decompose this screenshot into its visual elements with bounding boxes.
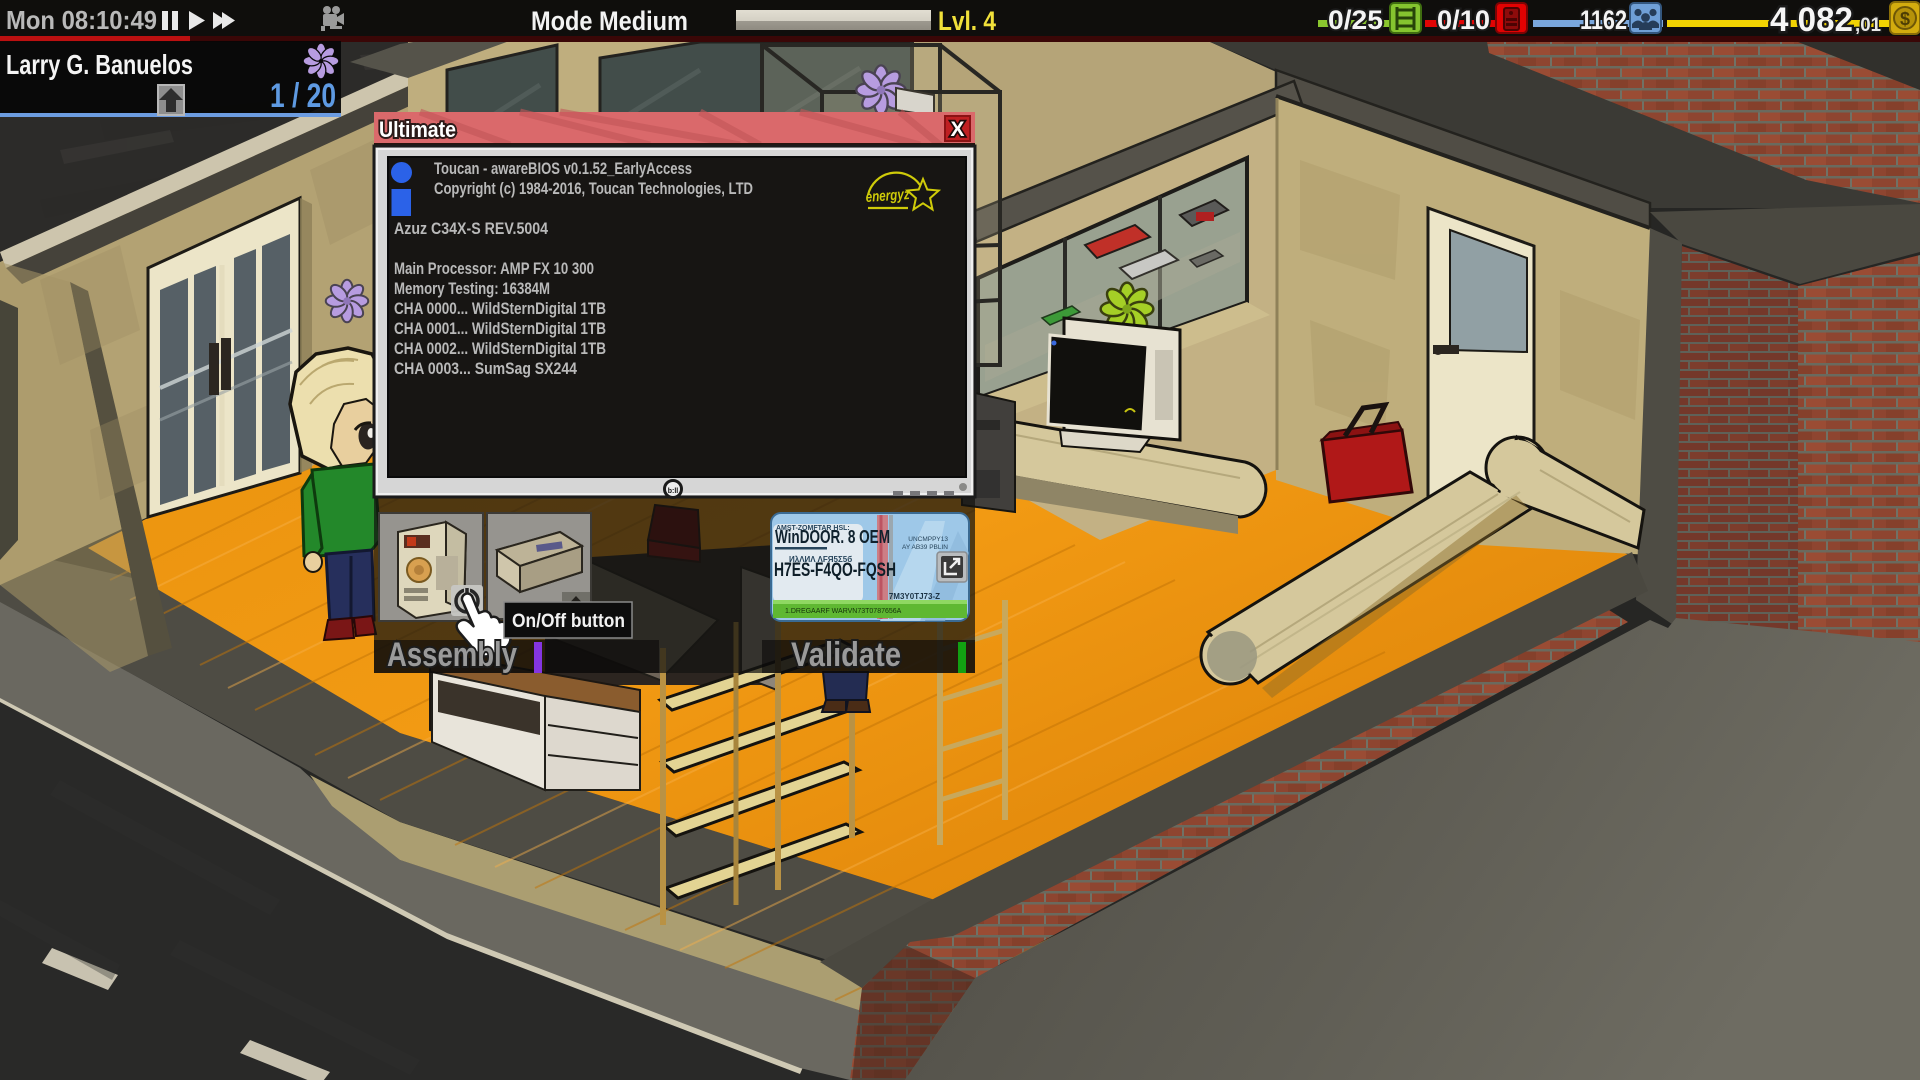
svg-text:Validate: Validate: [791, 636, 901, 674]
svg-text:UNCMPPY13: UNCMPPY13: [908, 536, 948, 543]
svg-text:Memory Testing: 16384M: Memory Testing: 16384M: [394, 279, 550, 298]
svg-text:CHA 0002... WildSternDigital 1: CHA 0002... WildSternDigital 1TB: [394, 339, 606, 358]
svg-text:CHA 0003... SumSag SX244: CHA 0003... SumSag SX244: [394, 359, 577, 378]
svg-text:AY AB39 PBLIN: AY AB39 PBLIN: [902, 544, 948, 551]
svg-text:X: X: [950, 118, 964, 141]
svg-text:Main Processor: AMP FX 10 300: Main Processor: AMP FX 10 300: [394, 259, 594, 278]
svg-text:CHA 0001... WildSternDigital 1: CHA 0001... WildSternDigital 1TB: [394, 319, 606, 338]
svg-text:H7ES-F4QO-FQSH: H7ES-F4QO-FQSH: [774, 560, 896, 581]
svg-text:WinDOOR. 8 OEM: WinDOOR. 8 OEM: [775, 527, 890, 547]
svg-text:Assembly: Assembly: [387, 636, 517, 674]
svg-text:energyz: energyz: [865, 186, 910, 206]
svg-text:b:ll: b:ll: [668, 488, 679, 495]
svg-text:On/Off button: On/Off button: [512, 611, 625, 632]
svg-text:Ultimate: Ultimate: [379, 117, 456, 142]
svg-text:Copyright (c) 1984-2016, Touca: Copyright (c) 1984-2016, Toucan Technolo…: [434, 179, 753, 198]
svg-text:Azuz C34X-S REV.5004: Azuz C34X-S REV.5004: [394, 219, 548, 238]
svg-text:1.DREGAARF WARVN73T0787656A: 1.DREGAARF WARVN73T0787656A: [785, 608, 902, 615]
svg-text:7M3Y0TJ73-Z: 7M3Y0TJ73-Z: [889, 592, 940, 601]
svg-text:Toucan - awareBIOS v0.1.52_Ear: Toucan - awareBIOS v0.1.52_EarlyAccess: [434, 159, 692, 178]
svg-text:CHA 0000... WildSternDigital 1: CHA 0000... WildSternDigital 1TB: [394, 299, 606, 318]
